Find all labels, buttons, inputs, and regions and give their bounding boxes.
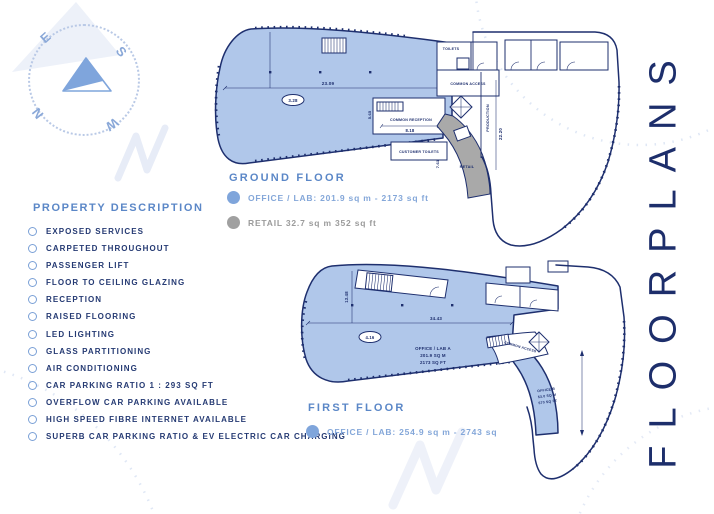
list-bullet-icon (28, 364, 37, 373)
list-bullet-icon (28, 415, 37, 424)
stairs-icon (322, 38, 346, 53)
legend-label: OFFICE / LAB: 201.9 sq m - 2173 sq ft (248, 193, 429, 203)
list-item-label: FLOOR TO CEILING GLAZING (46, 278, 185, 287)
legend-item-office-gf: OFFICE / LAB: 201.9 sq m - 2173 sq ft (227, 191, 429, 204)
grid-reference-label: 4.16 (366, 335, 375, 340)
compass-rose: E S W N (28, 24, 140, 136)
list-bullet-icon (28, 295, 37, 304)
lift-icon (450, 96, 472, 118)
list-item-label: RAISED FLOORING (46, 312, 136, 321)
retail-label: RETAIL (460, 165, 475, 169)
list-bullet-icon (28, 227, 37, 236)
list-bullet-icon (28, 381, 37, 390)
stairs-icon (377, 102, 403, 111)
list-item: CAR PARKING RATIO 1 : 293 SQ FT (28, 381, 298, 390)
office-swatch-icon (227, 191, 240, 204)
legend-item-retail-gf: RETAIL 32.7 sq m 352 sq ft (227, 216, 377, 229)
page-title-vertical: FLOORPLANS (643, 43, 686, 469)
ground-floor-title: GROUND FLOOR (229, 172, 346, 184)
list-bullet-icon (28, 330, 37, 339)
list-item-label: GLASS PARTITIONING (46, 347, 151, 356)
dimension-line-right (580, 350, 584, 436)
plant-box (548, 261, 568, 272)
list-bullet-icon (28, 312, 37, 321)
list-item-label: OVERFLOW CAR PARKING AVAILABLE (46, 398, 228, 407)
list-item: PASSENGER LIFT (28, 261, 298, 270)
list-item: OVERFLOW CAR PARKING AVAILABLE (28, 398, 298, 407)
dimension-width-label: 34.43 (430, 316, 442, 321)
office-swatch-icon (306, 425, 319, 438)
first-floor-plan: 34.43 13.48 4.16 OFFICE / LAB A 201.9 SQ… (290, 253, 642, 498)
list-item: RECEPTION (28, 295, 298, 304)
list-item-label: AIR CONDITIONING (46, 364, 138, 373)
grid-reference-label: 3.28 (288, 98, 298, 103)
stairs-icon (365, 273, 393, 292)
first-floor-title: FIRST FLOOR (308, 402, 406, 414)
legend-label: OFFICE / LAB: 254.9 sq m - 2743 sq (327, 427, 497, 437)
dimension-bay-label: 5.65 (367, 110, 372, 119)
property-description-list: EXPOSED SERVICES CARPETED THROUGHOUT PAS… (28, 227, 298, 441)
dimension-retail-label: 7.61 (435, 159, 440, 168)
retail-swatch-icon (227, 216, 240, 229)
list-item-label: HIGH SPEED FIBRE INTERNET AVAILABLE (46, 415, 247, 424)
list-item-label: PASSENGER LIFT (46, 261, 129, 270)
production-label: PRODUCTION (486, 104, 490, 132)
list-item-label: CARPETED THROUGHOUT (46, 244, 170, 253)
toilets-label: TOILETS (443, 47, 460, 51)
toilet-cubicle (457, 58, 469, 69)
toilets-room-2 (471, 42, 497, 70)
dimension-height-label: 22.20 (498, 128, 503, 140)
list-item: GLASS PARTITIONING (28, 347, 298, 356)
list-item-label: CAR PARKING RATIO 1 : 293 SQ FT (46, 381, 214, 390)
office-b-label-block: OFFICE B 53.0 SQ M 570 SQ FT (537, 387, 559, 406)
first-floor-drawing: 34.43 13.48 4.16 OFFICE / LAB A 201.9 SQ… (302, 261, 625, 479)
list-item-label: EXPOSED SERVICES (46, 227, 144, 236)
list-item: AIR CONDITIONING (28, 364, 298, 373)
dimension-height-label: 13.48 (344, 291, 349, 303)
list-item-label: RECEPTION (46, 295, 102, 304)
list-item: LED LIGHTING (28, 330, 298, 339)
dimension-width-label: 23.09 (322, 81, 335, 86)
compass-needle-icon (56, 52, 114, 96)
list-item: SUPERB CAR PARKING RATIO & EV ELECTRIC C… (28, 432, 298, 441)
legend-item-office-ff: OFFICE / LAB: 254.9 sq m - 2743 sq (306, 425, 497, 438)
list-bullet-icon (28, 347, 37, 356)
list-item-label: LED LIGHTING (46, 330, 115, 339)
list-bullet-icon (28, 398, 37, 407)
common-reception-label: COMMON RECEPTION (390, 118, 432, 122)
brochure-page: E S W N FLOORPLANS PROPERTY DESCRIPTION … (0, 0, 714, 514)
list-bullet-icon (28, 432, 37, 441)
ground-floor-drawing: 23.09 3.28 TOILETS COMMON ACCESS (216, 27, 620, 246)
store-room (560, 42, 608, 70)
list-bullet-icon (28, 261, 37, 270)
list-bullet-icon (28, 278, 37, 287)
dimension-reception-label: 8.18 (406, 128, 415, 133)
window-ticks-outline (561, 86, 619, 230)
list-bullet-icon (28, 244, 37, 253)
office-a-sqm: 201.9 SQ M (420, 353, 446, 358)
office-a-name: OFFICE / LAB A (415, 346, 451, 351)
riser-room (506, 267, 530, 283)
list-item: HIGH SPEED FIBRE INTERNET AVAILABLE (28, 415, 298, 424)
list-item: RAISED FLOORING (28, 312, 298, 321)
list-item: FLOOR TO CEILING GLAZING (28, 278, 298, 287)
office-a-sqft: 2173 SQ FT (420, 360, 446, 365)
window-ticks-outline (573, 321, 624, 469)
legend-label: RETAIL 32.7 sq m 352 sq ft (248, 218, 377, 228)
customer-toilets-label: CUSTOMER TOILETS (399, 150, 439, 154)
